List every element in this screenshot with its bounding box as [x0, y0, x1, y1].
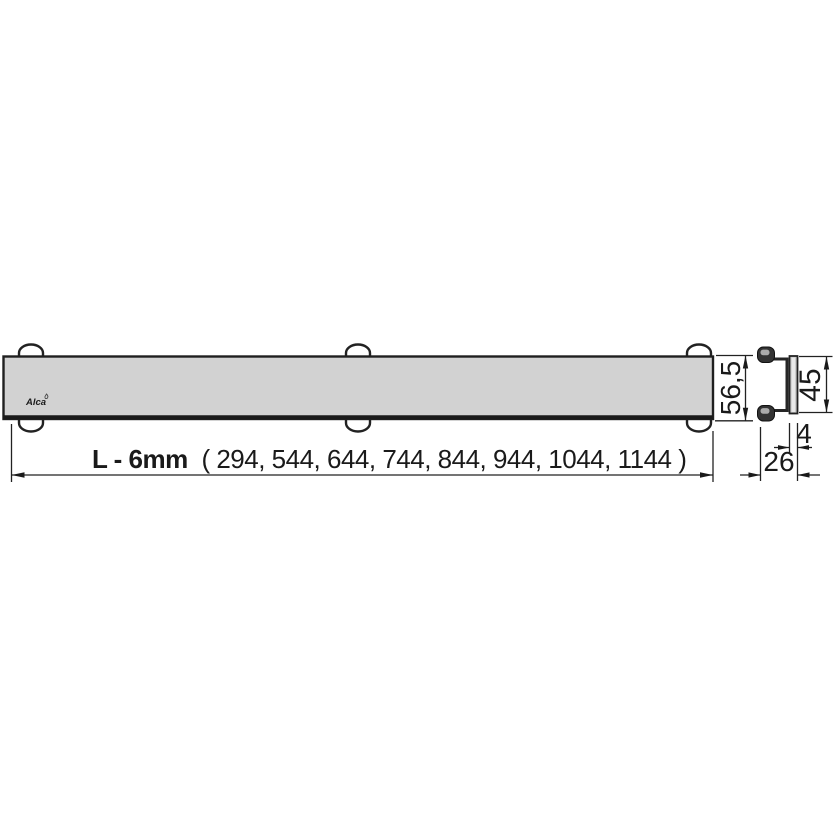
- technical-drawing-page: Alca L - 6mm ( 294, 544, 644, 744, 844, …: [0, 0, 833, 833]
- height-dimension: 56,5: [715, 356, 753, 421]
- mounting-clip-top: [758, 347, 775, 363]
- grate-plan-view: Alca: [3, 345, 713, 432]
- arrowhead-left: [798, 472, 810, 477]
- arrowhead-right: [749, 472, 761, 477]
- plate-height-dimension: 45: [794, 357, 833, 413]
- length-dimension-label: L - 6mm ( 294, 544, 644, 744, 844, 944, …: [92, 444, 686, 474]
- plate-height-value: 45: [794, 368, 827, 401]
- length-values: ( 294, 544, 644, 744, 844, 944, 1044, 11…: [201, 444, 686, 474]
- length-dimension: L - 6mm ( 294, 544, 644, 744, 844, 944, …: [12, 424, 714, 482]
- plate-thickness-value: 4: [796, 418, 812, 449]
- alca-logo-text: Alca: [25, 397, 46, 408]
- clip-highlight: [761, 350, 770, 356]
- profile-depth-value: 26: [763, 446, 794, 477]
- arrowhead-right: [700, 472, 713, 477]
- technical-drawing-canvas: Alca L - 6mm ( 294, 544, 644, 744, 844, …: [0, 0, 833, 833]
- length-label-bold: L - 6mm: [92, 444, 188, 474]
- clip-highlight: [761, 408, 770, 414]
- height-dimension-value: 56,5: [715, 361, 746, 416]
- arrowhead-left: [12, 472, 25, 477]
- side-profile-view: [758, 347, 798, 421]
- mounting-clip-bottom: [758, 406, 775, 422]
- grate-body: [4, 357, 714, 420]
- arrowhead-up: [824, 357, 829, 370]
- alca-logo: Alca: [25, 394, 48, 408]
- bracket-profile: [769, 359, 787, 411]
